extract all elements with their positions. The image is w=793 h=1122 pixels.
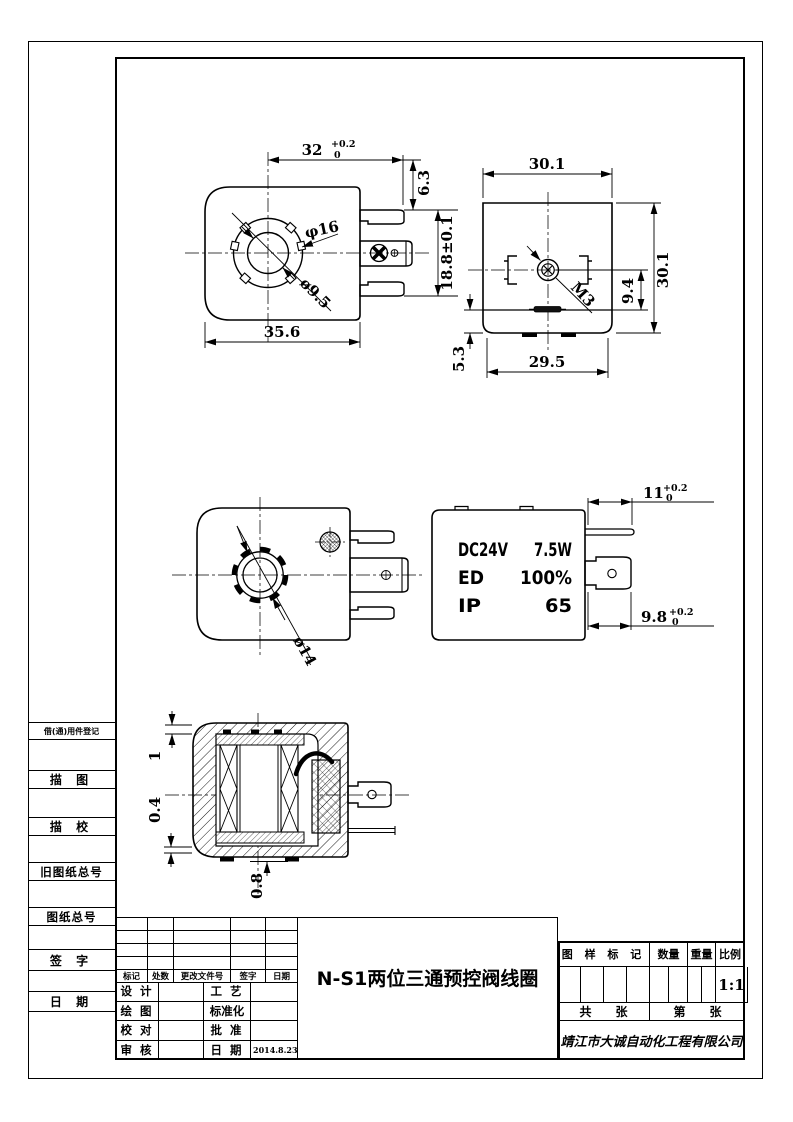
- dim-width: 32: [302, 141, 323, 159]
- spade-hole: [368, 790, 376, 798]
- terminal-tab-top: [360, 210, 404, 224]
- dim-spade-length: 9.8: [641, 608, 667, 626]
- cavity: [216, 734, 318, 846]
- spec-power-value: 7.5W: [534, 539, 572, 561]
- dim-foot: 0.8: [248, 873, 266, 899]
- top-mark: [223, 730, 231, 734]
- foot-mark: [220, 857, 234, 862]
- dim-width-tol-plus: +0.2: [331, 139, 356, 150]
- view-front-mid: ø14: [172, 497, 425, 669]
- dim-width-tol-zero: 0: [334, 150, 341, 161]
- foot-mark: [522, 333, 537, 337]
- dim-boss-dia: φ16: [303, 217, 340, 242]
- spec-ed-value: 100%: [520, 567, 572, 589]
- spec-ip-label: IP: [458, 595, 481, 617]
- ground-pin: [348, 826, 395, 835]
- dim-gap: 0.4: [146, 797, 164, 823]
- terminal-tab-top: [350, 531, 394, 543]
- drawing-canvas: 32 +0.2 0 6.3 18.8±0.1 35.6 φ16 ø9.5: [0, 0, 793, 1122]
- foot-mark: [561, 333, 576, 337]
- dim-tab-offset: 6.3: [415, 170, 433, 196]
- view-front-top: 32 +0.2 0 6.3 18.8±0.1 35.6 φ16 ø9.5: [185, 139, 458, 348]
- spade-hole: [608, 569, 616, 577]
- top-terminal-plate: [585, 529, 634, 535]
- bottom-slot: [534, 307, 561, 313]
- spade-terminal: [348, 782, 391, 807]
- bobbin-bottom-flange: [216, 832, 304, 843]
- bobbin-top-flange: [216, 734, 304, 745]
- dim-center-to-base: 9.4: [619, 278, 637, 304]
- view-side-mid: 11 +0.2 0 9.8 +0.2 0 DC24V 7.5W ED 100% …: [432, 483, 714, 640]
- spec-voltage-label: DC24V: [458, 539, 508, 561]
- dim-body-width: 35.6: [264, 323, 301, 341]
- dimension-lines: [464, 168, 661, 378]
- dim-tab-tol-zero: 0: [666, 493, 673, 504]
- spec-ip-value: 65: [545, 595, 572, 617]
- coil-body-outline: [197, 508, 350, 640]
- foot-mark: [285, 857, 299, 862]
- drawing-sheet: 借(通)用件登记 描 图 描 校 旧图纸总号 图纸总号 签 字 日 期 标记 处…: [0, 0, 793, 1122]
- dim-screw-thread: M3: [567, 278, 599, 310]
- terminal-tab-bottom: [350, 607, 394, 619]
- coil-body-outline: [205, 187, 360, 320]
- dim-tab-span: 18.8±0.1: [438, 215, 456, 290]
- dim-tab-length: 11: [643, 484, 664, 502]
- dim-base-step: 5.3: [450, 346, 468, 372]
- top-mark: [274, 730, 282, 734]
- dim-wall: 1: [146, 751, 164, 761]
- dim-gear-dia: ø14: [290, 633, 321, 669]
- terminal-molding-section: [312, 760, 340, 833]
- view-side-top: 30.1 30.1 9.4 5.3 29.5 M3: [450, 155, 672, 378]
- view-section: 1 0.4 0.8: [146, 711, 412, 899]
- dim-width: 30.1: [529, 155, 566, 173]
- top-mark: [251, 730, 259, 734]
- dim-height: 30.1: [654, 252, 672, 289]
- body-outline: [483, 203, 612, 333]
- dim-bore-dia: ø9.5: [296, 274, 334, 312]
- spec-ed-label: ED: [458, 567, 484, 589]
- dim-base-width: 29.5: [529, 353, 566, 371]
- dim-spade-tol-zero: 0: [672, 617, 679, 628]
- center-terminal-block: [360, 241, 412, 266]
- knurled-nut: [320, 532, 340, 552]
- terminal-tab-bottom: [360, 282, 404, 296]
